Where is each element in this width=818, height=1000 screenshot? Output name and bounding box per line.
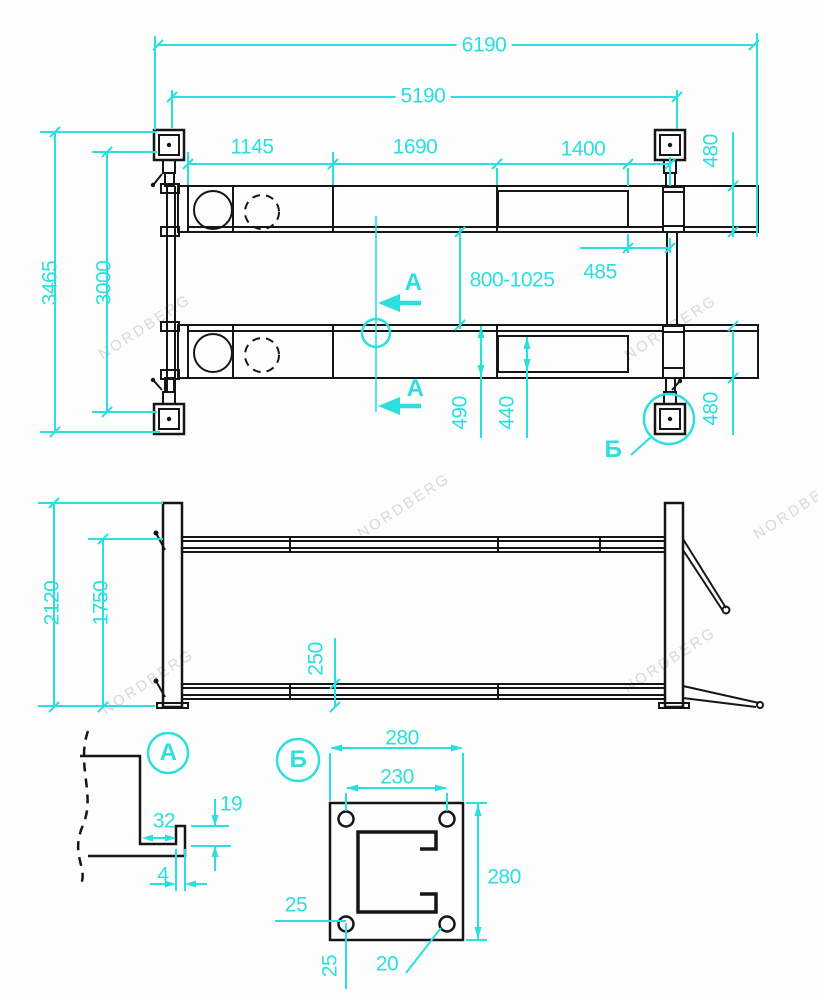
dim-detail-a-width: 32 [153, 811, 175, 832]
dim-edge-offset-left: 25 [285, 895, 307, 916]
dim-min-height: 250 [306, 642, 327, 676]
dim-detail-a-lip: 19 [220, 794, 242, 815]
section-mark-a-bottom: A [407, 377, 424, 401]
dim-seg-right: 1400 [561, 139, 606, 160]
dim-runway-width-bottom: 480 [701, 392, 722, 426]
dim-plate-height: 280 [487, 867, 521, 888]
dim-detail-a-thickness: 4 [157, 865, 168, 886]
top-view-linework [151, 130, 758, 434]
post-top-left [151, 130, 184, 187]
dim-440: 440 [497, 396, 518, 430]
dim-column-height: 2120 [42, 581, 63, 626]
dim-runway-width-top: 480 [701, 134, 722, 168]
dim-hole-spacing: 230 [380, 767, 414, 788]
detail-mark-b: Б [605, 438, 622, 462]
post-bottom-right [655, 378, 685, 434]
dim-490: 490 [450, 396, 471, 430]
dim-rail-height: 1750 [91, 581, 112, 626]
dim-track-range: 800-1025 [470, 270, 555, 291]
detail-b-title: Б [290, 748, 307, 772]
side-view-dimensions [38, 498, 340, 712]
dim-seg-mid: 1690 [393, 137, 438, 158]
dim-plate-width: 280 [385, 728, 419, 749]
side-view-linework [154, 503, 764, 708]
dim-post-span: 5190 [396, 86, 451, 107]
lift-technical-drawing: NORDBERG NORDBERG NORDBERG NORDBERG NORD… [0, 0, 818, 1000]
dim-hole-diameter: 20 [376, 954, 398, 975]
dim-post-width: 3000 [94, 261, 115, 306]
dim-overall-length: 6190 [457, 35, 512, 56]
detail-a-title: A [160, 741, 177, 765]
dim-seg-left: 1145 [230, 137, 273, 158]
dim-edge-offset-bottom: 25 [320, 955, 341, 977]
dim-offset-485: 485 [583, 262, 617, 283]
dim-overall-width: 3465 [40, 261, 61, 306]
section-mark-a-top: A [405, 271, 422, 295]
